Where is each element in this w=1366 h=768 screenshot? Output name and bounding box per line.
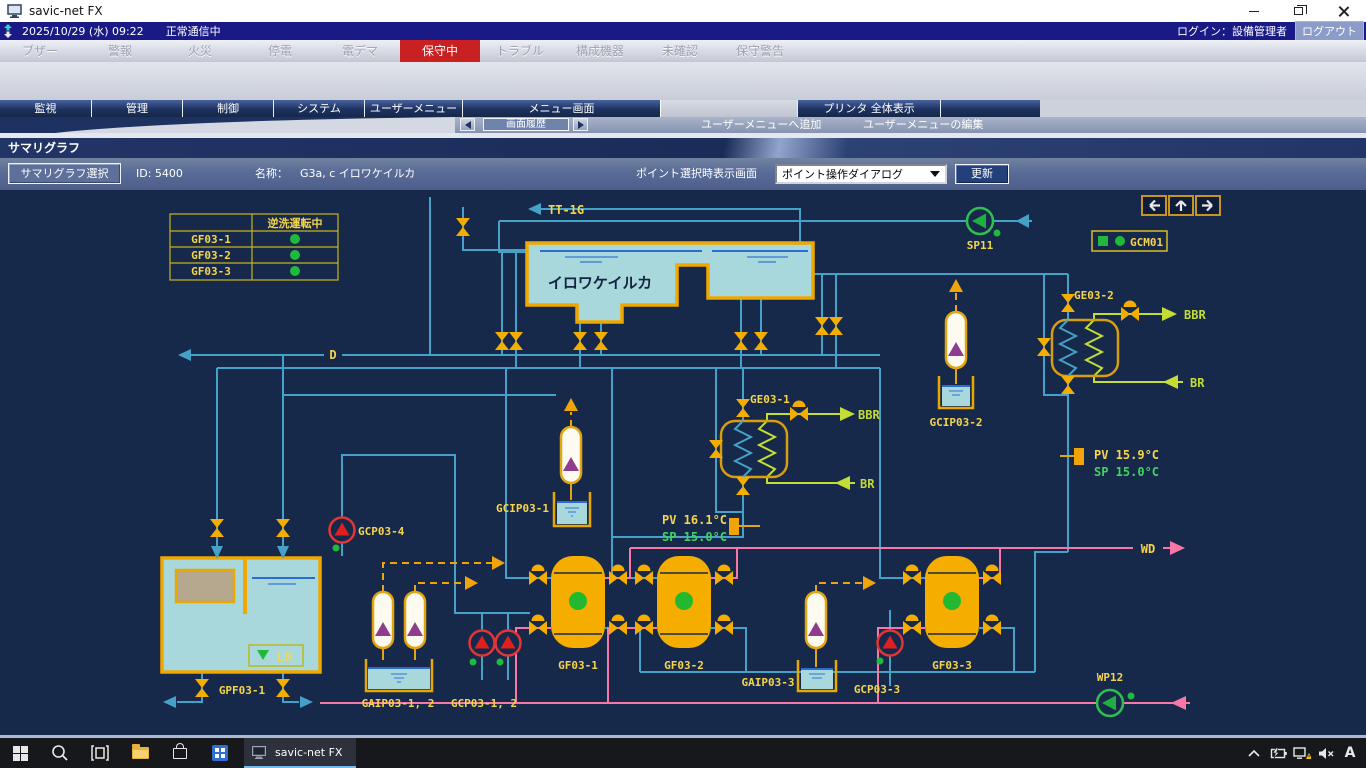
gcip03-2-unit[interactable]: GCIP03-2: [930, 312, 983, 429]
motor-valve-icon[interactable]: [635, 565, 653, 586]
temp-sensor-icon[interactable]: [1074, 448, 1084, 465]
motor-valve-icon[interactable]: [609, 615, 627, 636]
valve-icon[interactable]: [815, 317, 829, 335]
window-titlebar: savic-net FX: [0, 0, 1366, 22]
valve-icon[interactable]: [210, 519, 224, 537]
diagram-canvas: イロワケイルカ LO GAIP03-1, 2 GCIP03-1: [0, 190, 1366, 735]
nav-up-button[interactable]: [1169, 196, 1193, 215]
status-dot: [290, 234, 300, 244]
chevron-right-icon: [578, 121, 584, 129]
process-diagram: イロワケイルカ LO GAIP03-1, 2 GCIP03-1: [0, 190, 1366, 735]
table-row-gf03-3: GF03-3: [191, 265, 231, 278]
temp-sensor-icon[interactable]: [729, 518, 739, 535]
gaip03-3-label: GAIP03-3: [742, 676, 795, 689]
valve-icon[interactable]: [276, 679, 290, 697]
gcp03-4-pump-icon[interactable]: [330, 518, 355, 543]
alarm-tab-trouble[interactable]: トラブル: [480, 40, 560, 62]
valve-icon[interactable]: [509, 332, 523, 350]
point-dialog-selected: ポイント操作ダイアログ: [782, 166, 903, 182]
gf03-2-label: GF03-2: [664, 659, 704, 672]
ge2-pv-value: PV 15.9°C: [1094, 448, 1159, 462]
tray-battery[interactable]: [1266, 738, 1290, 768]
chevron-left-icon: [465, 121, 471, 129]
valve-icon[interactable]: [495, 332, 509, 350]
table-row-gf03-2: GF03-2: [191, 249, 231, 262]
minimize-icon: [1249, 11, 1259, 12]
alarm-tab-maintwarning[interactable]: 保守警告: [720, 40, 800, 62]
ge03-1-heat-exchanger[interactable]: GE03-1: [721, 393, 790, 477]
gcip03-1-label: GCIP03-1: [496, 502, 549, 515]
login-user: ログイン：設備管理者: [1177, 23, 1287, 39]
edit-user-menu-link[interactable]: ユーザーメニューの編集: [863, 117, 983, 133]
lo-label: LO: [277, 650, 291, 664]
logout-button[interactable]: ログアウト: [1295, 21, 1364, 41]
point-dialog-select[interactable]: ポイント操作ダイアログ: [775, 164, 947, 184]
gf03-2-filter[interactable]: GF03-2: [657, 556, 711, 672]
gcm01-label: GCM01: [1130, 236, 1163, 249]
swoosh-decoration: [0, 117, 455, 133]
alarm-tab-unconfirmed[interactable]: 未確認: [640, 40, 720, 62]
maximize-icon: [1294, 7, 1303, 15]
motor-valve-icon[interactable]: [983, 615, 1001, 636]
close-button[interactable]: [1321, 0, 1366, 22]
gaip03-12-label: GAIP03-1, 2: [362, 697, 435, 710]
nav-right-button[interactable]: [1196, 196, 1220, 215]
valve-icon[interactable]: [456, 218, 470, 236]
gf03-3-filter[interactable]: GF03-3: [925, 556, 979, 672]
brine-lines: [0, 190, 1183, 483]
taskbar-app-savicnet[interactable]: savic-net FX: [244, 738, 356, 768]
backwash-status-table: 逆洗運転中 GF03-1 GF03-2 GF03-3: [170, 214, 338, 280]
alarm-tab-maintenance[interactable]: 保守中: [400, 40, 480, 62]
windows-logo-icon: [13, 746, 28, 761]
table-row-gf03-1: GF03-1: [191, 233, 231, 246]
motor-valve-icon[interactable]: [983, 565, 1001, 586]
status-square-icon: [1098, 236, 1108, 246]
motor-valve-icon[interactable]: [903, 615, 921, 636]
tray-volume[interactable]: [1314, 738, 1338, 768]
pinned-app-button[interactable]: [200, 738, 240, 768]
maximize-button[interactable]: [1276, 0, 1321, 22]
table-header: 逆洗運転中: [268, 216, 323, 230]
gf03-3-label: GF03-3: [932, 659, 972, 672]
nav-left-button[interactable]: [1142, 196, 1166, 215]
ge03-1-label: GE03-1: [750, 393, 790, 406]
menu-tab-menuscreen[interactable]: メニュー画面: [462, 100, 660, 117]
gf03-1-filter[interactable]: GF03-1: [551, 556, 605, 672]
alarm-tab-bar: ブザー 警報 火災 停電 電デマ 保守中 トラブル 構成機器 未確認 保守警告: [0, 40, 1366, 62]
alarm-tab-equipment[interactable]: 構成機器: [560, 40, 640, 62]
screen-history-button[interactable]: 画面履歴: [483, 118, 569, 131]
ge2-sp-value: SP 15.0°C: [1094, 465, 1159, 479]
store-bag-icon: [173, 748, 187, 759]
system-tray: A: [1242, 738, 1362, 768]
valve-icon[interactable]: [1061, 376, 1075, 394]
speaker-muted-icon: [1318, 747, 1335, 760]
tray-ime-mode[interactable]: A: [1338, 738, 1362, 768]
bbr2-label: BBR: [1184, 308, 1206, 322]
motor-valve-icon[interactable]: [790, 401, 808, 422]
gcip03-2-label: GCIP03-2: [930, 416, 983, 429]
search-icon: [51, 744, 69, 762]
pool-label: イロワケイルカ: [548, 274, 652, 292]
motor-valve-icon[interactable]: [1121, 301, 1139, 322]
battery-icon: [1269, 748, 1287, 759]
taskbar: savic-net FX: [0, 738, 1366, 768]
sp11-label: SP11: [967, 239, 994, 252]
air-injector-icon: [405, 592, 425, 648]
gcp03-1-pump-icon[interactable]: [470, 631, 495, 656]
datetime: 2025/10/29 (水) 09:22: [22, 23, 144, 39]
valve-icon[interactable]: [734, 332, 748, 350]
br1-label: BR: [860, 477, 875, 491]
menu-tab-empty: [660, 100, 797, 117]
wd-label: WD: [1141, 542, 1155, 556]
menu-tab-filler: [940, 100, 1040, 117]
br2-label: BR: [1190, 376, 1205, 390]
file-explorer-button[interactable]: [120, 738, 160, 768]
motor-valve-icon[interactable]: [715, 565, 733, 586]
valve-icon[interactable]: [1037, 338, 1051, 356]
valve-icon[interactable]: [1061, 294, 1075, 312]
motor-valve-icon[interactable]: [715, 615, 733, 636]
gcip03-1-unit[interactable]: GCIP03-1: [496, 427, 590, 526]
network-warning-icon: [1293, 747, 1311, 760]
graph-name-label: 名称：: [255, 158, 288, 190]
point-display-label: ポイント選択時表示画面: [636, 158, 757, 190]
minimize-button[interactable]: [1231, 0, 1276, 22]
menu-tab-monitor[interactable]: 監視: [0, 100, 91, 117]
start-button[interactable]: [0, 738, 40, 768]
folder-icon: [132, 747, 149, 759]
status-bar: 2025/10/29 (水) 09:22 正常通信中 ログイン：設備管理者 ログ…: [0, 22, 1366, 40]
history-back-button[interactable]: [460, 118, 475, 131]
gaip03-12-unit[interactable]: GAIP03-1, 2: [362, 592, 435, 710]
motor-valves: [529, 301, 1139, 636]
graph-name-value: G3a, c イロワケイルカ: [300, 158, 415, 190]
valve-icon[interactable]: [195, 679, 209, 697]
motor-valve-icon[interactable]: [635, 615, 653, 636]
summary-graph-select-button[interactable]: サマリグラフ選択: [8, 163, 121, 184]
app-icon: [7, 4, 23, 18]
chevron-down-icon: [930, 171, 940, 177]
taskbar-app-label: savic-net FX: [275, 746, 342, 759]
tray-network[interactable]: [1290, 738, 1314, 768]
wp12-label: WP12: [1097, 671, 1124, 684]
sp11-pump-icon[interactable]: [967, 208, 993, 234]
valve-icon[interactable]: [829, 317, 843, 335]
gcm01-status-box[interactable]: GCM01: [1092, 231, 1167, 251]
close-icon: [1339, 6, 1349, 16]
left-filter-tank: LO: [162, 558, 320, 672]
search-button[interactable]: [40, 738, 80, 768]
comm-status: 正常通信中: [166, 23, 221, 39]
alarm-tab-fire[interactable]: 火災: [160, 40, 240, 62]
motor-valve-icon[interactable]: [903, 565, 921, 586]
air-injector-icon: [561, 427, 581, 483]
gaip03-3-unit[interactable]: GAIP03-3: [742, 592, 836, 691]
app-grid-icon: [212, 745, 228, 761]
ge03-2-heat-exchanger[interactable]: GE03-2: [1052, 289, 1118, 376]
store-button[interactable]: [160, 738, 200, 768]
header-spacer: [0, 62, 1366, 100]
page-title-bar: サマリグラフ: [0, 138, 1366, 158]
status-dot: [290, 250, 300, 260]
gcp03-12-label: GCP03-1, 2: [451, 697, 517, 710]
ge03-2-label: GE03-2: [1074, 289, 1114, 302]
diagram-nav-buttons: [1142, 196, 1220, 215]
dolphin-pool: イロワケイルカ: [527, 243, 813, 322]
bbr1-label: BBR: [858, 408, 880, 422]
graph-id: ID: 5400: [136, 158, 183, 190]
gcp03-4-label: GCP03-4: [358, 525, 405, 538]
alarm-tab-demand[interactable]: 電デマ: [320, 40, 400, 62]
gf03-1-label: GF03-1: [558, 659, 598, 672]
summary-toolbar: サマリグラフ選択 ID: 5400 名称： G3a, c イロワケイルカ ポイン…: [0, 158, 1366, 190]
air-injector-icon: [946, 312, 966, 368]
d-line-label: D: [329, 348, 336, 362]
valve-icon[interactable]: [754, 332, 768, 350]
gcp03-2-pump-icon[interactable]: [496, 631, 521, 656]
task-view-icon: [91, 745, 109, 761]
air-injector-icon: [373, 592, 393, 648]
menu-tab-printer[interactable]: プリンタ 全体表示: [797, 100, 940, 117]
motor-valve-icon[interactable]: [529, 615, 547, 636]
gcp03-3-label: GCP03-3: [854, 683, 900, 696]
gpf03-1-label: GPF03-1: [219, 684, 266, 697]
wp12-pump-icon[interactable]: [1097, 690, 1123, 716]
alarm-tab-poweroutage[interactable]: 停電: [240, 40, 320, 62]
menu-bar: 監視 管理 制御 システム ユーザーメニュー メニュー画面 プリンタ 全体表示: [0, 100, 1366, 117]
menu-tab-control[interactable]: 制御: [182, 100, 273, 117]
alarm-tab-alarm[interactable]: 警報: [80, 40, 160, 62]
app-monitor-icon: [252, 746, 268, 759]
valve-icon[interactable]: [594, 332, 608, 350]
window-title: savic-net FX: [29, 4, 103, 18]
alarm-tab-buzzer[interactable]: ブザー: [0, 40, 80, 62]
air-injector-icon: [806, 592, 826, 648]
valve-icon[interactable]: [573, 332, 587, 350]
gcp03-3-pump-icon[interactable]: [878, 631, 903, 656]
motor-valve-icon[interactable]: [529, 565, 547, 586]
status-dot: [290, 266, 300, 276]
gf-sp-value: SP 15.0°C: [662, 530, 727, 544]
menu-tab-usermenu[interactable]: ユーザーメニュー: [364, 100, 462, 117]
menu-tab-system[interactable]: システム: [273, 100, 364, 117]
tray-expand-button[interactable]: [1242, 738, 1266, 768]
comm-sync-icon: [2, 24, 14, 38]
page-title: サマリグラフ: [8, 141, 80, 155]
menu-tab-manage[interactable]: 管理: [91, 100, 182, 117]
tt1g-label: TT-1G: [548, 203, 584, 217]
history-forward-button[interactable]: [573, 118, 588, 131]
valve-icon[interactable]: [736, 399, 750, 417]
update-button[interactable]: 更新: [955, 164, 1009, 184]
nav-row: 画面履歴 ユーザーメニューへ追加 ユーザーメニューの編集: [0, 117, 1366, 133]
chevron-up-icon: [1248, 749, 1260, 757]
status-dot: [1115, 236, 1125, 246]
valve-icon[interactable]: [736, 477, 750, 495]
task-view-button[interactable]: [80, 738, 120, 768]
gf-pv-value: PV 16.1°C: [662, 513, 727, 527]
valve-icon[interactable]: [276, 519, 290, 537]
add-user-menu-link[interactable]: ユーザーメニューへ追加: [701, 117, 821, 133]
